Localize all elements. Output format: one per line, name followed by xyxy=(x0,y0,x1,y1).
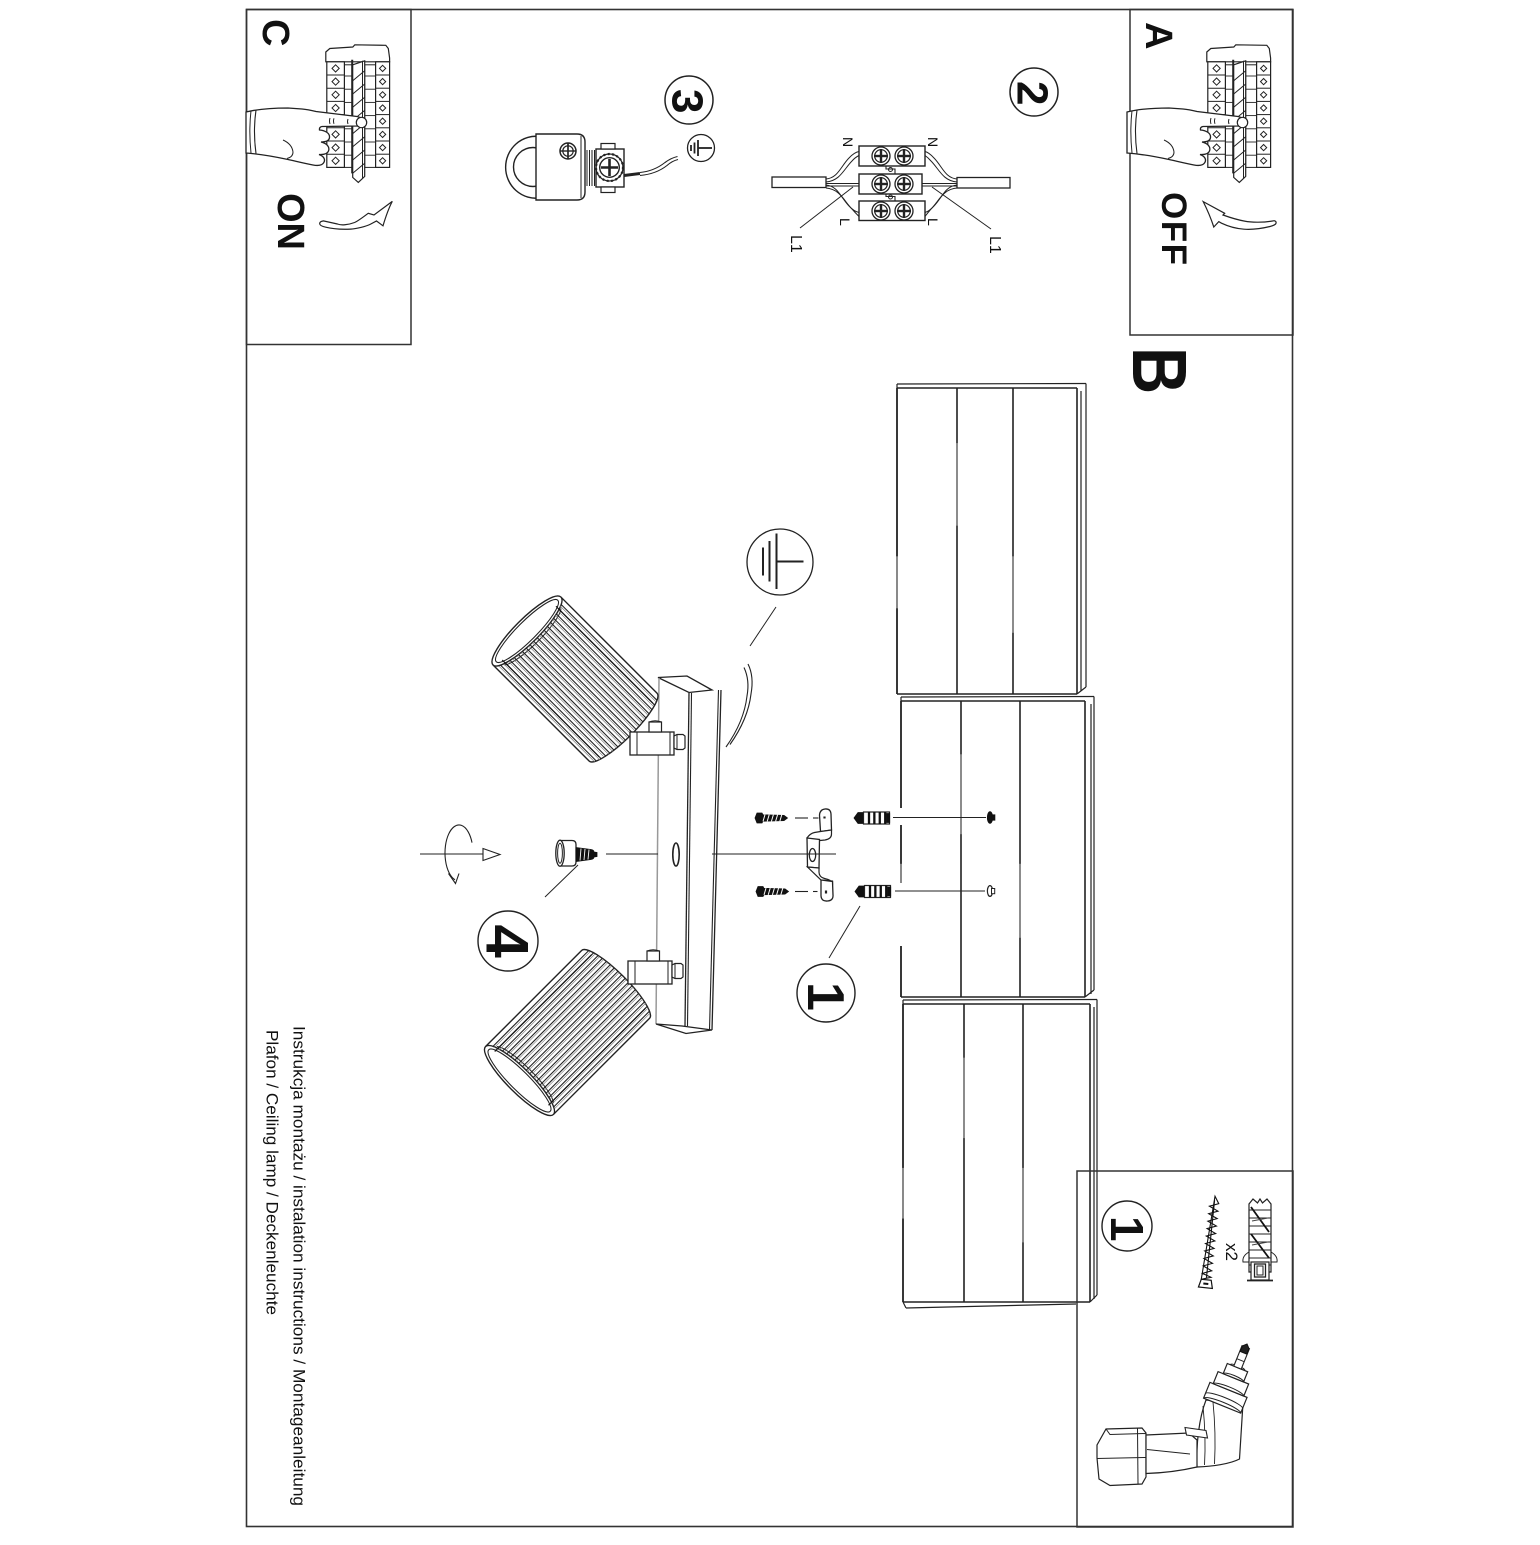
svg-text:N: N xyxy=(840,137,856,147)
svg-text:L1: L1 xyxy=(787,235,804,253)
svg-text:C: C xyxy=(254,19,296,46)
svg-text:A: A xyxy=(1137,22,1179,49)
svg-text:Instrukcja montażu / instalati: Instrukcja montażu / instalation instruc… xyxy=(290,1026,309,1506)
svg-text:L1: L1 xyxy=(986,236,1003,254)
svg-text:x2: x2 xyxy=(1222,1243,1241,1261)
svg-text:B: B xyxy=(1116,347,1202,394)
svg-text:4: 4 xyxy=(474,925,541,959)
svg-text:N: N xyxy=(925,137,941,147)
svg-text:L: L xyxy=(837,218,853,226)
svg-text:Plafon / Ceiling lamp / Decken: Plafon / Ceiling lamp / Deckenleuchte xyxy=(263,1030,282,1315)
svg-text:3: 3 xyxy=(663,89,712,113)
svg-text:2: 2 xyxy=(1008,81,1057,105)
svg-text:OFF: OFF xyxy=(1154,192,1193,266)
svg-text:ON: ON xyxy=(269,193,311,250)
svg-text:L: L xyxy=(925,218,941,226)
svg-text:1: 1 xyxy=(796,982,854,1011)
svg-text:1: 1 xyxy=(1101,1216,1153,1242)
